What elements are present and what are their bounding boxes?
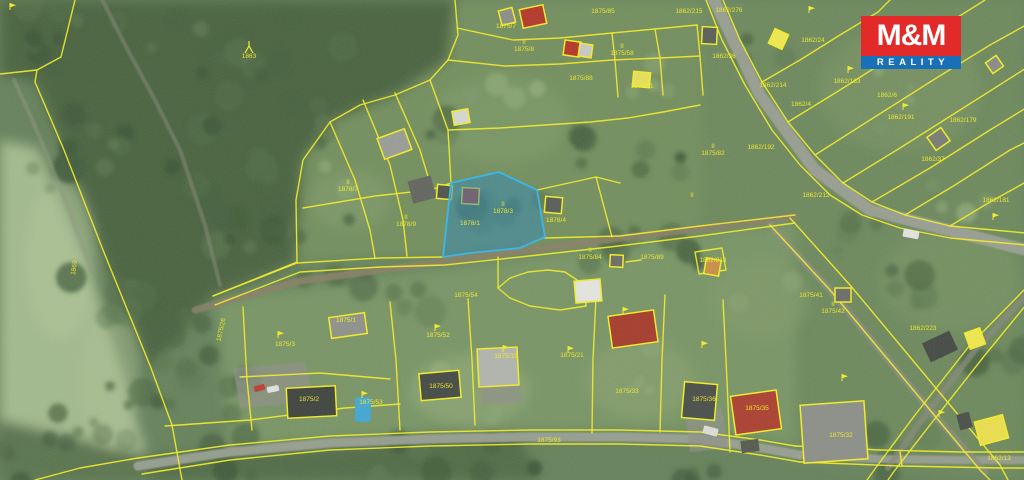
cadastral-map: 1863II1875/81875/85II1875/581875/881875/… xyxy=(0,0,1024,480)
agency-logo-mm-text: M&M xyxy=(877,19,946,52)
listing-map-image[interactable]: 1863II1875/81875/85II1875/581875/881875/… xyxy=(0,0,1024,480)
photo-grain xyxy=(0,0,1024,480)
agency-logo: M&M REALITY xyxy=(861,16,961,69)
agency-logo-reality-text: REALITY xyxy=(877,57,949,68)
agency-logo-reality: REALITY xyxy=(861,56,961,69)
agency-logo-mm: M&M xyxy=(861,16,961,56)
